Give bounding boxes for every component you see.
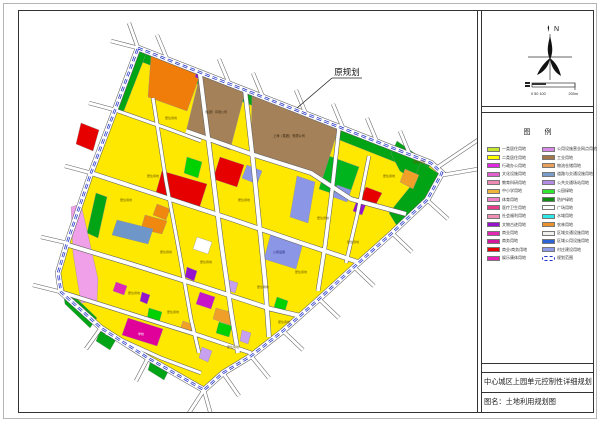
legend-item: 娱乐康体用地 — [482, 254, 537, 262]
road — [438, 140, 477, 167]
legend-item-label: 村庄建设用地 — [557, 248, 581, 252]
scale-bar-filled-segment — [532, 83, 546, 85]
legend-item: 公园绿地 — [537, 187, 592, 195]
legend-item: 防护绿地 — [537, 195, 592, 203]
north-and-scale-panel: N 0 50 100 200m — [505, 16, 590, 102]
legend-color-swatch — [487, 147, 500, 152]
road — [223, 373, 239, 396]
legend-item: 社会福利用地 — [482, 212, 537, 220]
legend-color-swatch — [487, 189, 500, 194]
legend-item-label: 文化设施用地 — [502, 172, 526, 176]
road — [89, 103, 115, 110]
legend-items: 一类居住用地二类居住用地行政办公用地文化设施用地教育科研用地中小学用地体育用地医… — [482, 145, 593, 265]
parcel-label: 居住用地 — [257, 284, 269, 289]
legend-item: 文化设施用地 — [482, 170, 537, 178]
legend-item-label: 广场用地 — [557, 206, 573, 210]
legend-color-swatch — [487, 180, 500, 185]
parcel-label: 居住用地 — [160, 249, 172, 254]
legend-color-swatch — [487, 231, 500, 236]
north-scale-drawing: N 0 50 100 200m — [505, 16, 590, 102]
parcel — [76, 123, 99, 151]
road — [392, 233, 412, 252]
legend-item-label: 公用设施营业网点用地 — [557, 147, 597, 151]
legend-color-swatch — [487, 247, 500, 252]
figure-name: 图名：土地利用规划图 — [482, 392, 593, 412]
legend-item: 规划范围 — [537, 254, 592, 262]
legend-item-label: 区域交通设施用地 — [557, 231, 589, 235]
legend-item-label: 防护绿地 — [557, 198, 573, 202]
road — [427, 200, 448, 219]
road — [251, 356, 269, 378]
legend-item-label: 中小学用地 — [502, 189, 522, 193]
legend-item-label: 文物古迹用地 — [502, 223, 526, 227]
legend-boundary-swatch — [542, 256, 555, 261]
compass-petal-southwest — [537, 58, 550, 75]
parcel-label: 居住用地 — [120, 197, 132, 202]
road — [65, 166, 91, 173]
parcel-label: 居住用地 — [295, 269, 307, 274]
road — [319, 299, 339, 318]
legend-item-label: 道路与交通设施用地 — [557, 172, 593, 176]
legend-item: 公用设施营业网点用地 — [537, 145, 592, 153]
parcel-label: 居住用地 — [278, 319, 290, 324]
legend-item-label: 物流仓储用地 — [557, 164, 581, 168]
legend-item-label: 商业/商务用地 — [502, 248, 527, 252]
legend-item: 物流仓储用地 — [537, 162, 592, 170]
legend-box-bottom-rule — [481, 363, 594, 364]
parcel-label: 居住用地 — [238, 197, 250, 202]
panel-divider-outer — [477, 10, 478, 413]
legend-item: 二类居住用地 — [482, 153, 537, 161]
legend-item: 商业/商务用地 — [482, 246, 537, 254]
legend-item: 体育用地 — [482, 195, 537, 203]
legend-item-label: 规划范围 — [557, 256, 573, 260]
legend-color-swatch — [542, 214, 555, 219]
legend-color-swatch — [487, 155, 500, 160]
legend-item-label: 公园绿地 — [557, 189, 573, 193]
legend-color-swatch — [542, 247, 555, 252]
legend-color-swatch — [542, 155, 555, 160]
legend-color-swatch — [487, 222, 500, 227]
legend-color-swatch — [542, 147, 555, 152]
legend-item-label: 体育用地 — [502, 198, 518, 202]
legend-item: 教育科研用地 — [482, 179, 537, 187]
annotation-original-plan: 原规划 — [334, 67, 360, 77]
parcel-label: 公用设施 — [273, 249, 285, 254]
legend-item: 公共交通场站用地 — [537, 179, 592, 187]
compass-petal-north — [548, 36, 553, 60]
scale-bar-hatch-bottom — [525, 85, 530, 87]
plan-sheet: 上海（集团）有限公司（集团）有限公司居住用地居住用地居住用地居住用地居住用地居住… — [0, 0, 600, 422]
road — [33, 285, 61, 292]
land-use-map: 上海（集团）有限公司（集团）有限公司居住用地居住用地居住用地居住用地居住用地居住… — [19, 11, 477, 412]
legend-item-label: 教育科研用地 — [502, 181, 526, 185]
parcel-label: 上海（集团）有限公司 — [273, 133, 305, 138]
parcel-label: 学校 — [138, 331, 144, 336]
legend-item-label: 工业用地 — [557, 156, 573, 160]
legend-item: 商务用地 — [482, 237, 537, 245]
parcel-label: 居住用地 — [167, 309, 179, 314]
legend-item-label: 娱乐康体用地 — [502, 256, 526, 260]
parcel-label: 居住用地 — [413, 159, 425, 164]
legend-color-swatch — [487, 205, 500, 210]
legend-item: 行政办公用地 — [482, 162, 537, 170]
legend-color-swatch — [542, 222, 555, 227]
road — [189, 390, 204, 412]
parcel-label: 居住用地 — [200, 259, 212, 264]
north-label: N — [554, 26, 559, 33]
legend-item-label: 商业用地 — [502, 231, 518, 235]
legend-color-swatch — [542, 205, 555, 210]
parcel-label: 居住用地 — [128, 290, 140, 295]
legend-item: 广场用地 — [537, 204, 592, 212]
parcel-label: 居住用地 — [165, 115, 177, 120]
map-area: 上海（集团）有限公司（集团）有限公司居住用地居住用地居住用地居住用地居住用地居住… — [19, 11, 477, 412]
legend-item: 医疗卫生用地 — [482, 204, 537, 212]
legend-item: 道路与交通设施用地 — [537, 170, 592, 178]
legend: 图 例 一类居住用地二类居住用地行政办公用地文化设施用地教育科研用地中小学用地体… — [482, 113, 593, 362]
legend-item-label: 医疗卫生用地 — [502, 206, 526, 210]
legend-item-label: 行政办公用地 — [502, 164, 526, 168]
legend-item: 水域用地 — [537, 212, 592, 220]
annotation-leader-line — [297, 78, 332, 108]
legend-item: 一类居住用地 — [482, 145, 537, 153]
parcel-label: 居住用地 — [383, 173, 395, 178]
legend-color-swatch — [487, 197, 500, 202]
scale-tick-labels: 0 50 100 — [531, 92, 546, 96]
scale-bar-hatch-top — [525, 82, 530, 84]
legend-item-label: 社会福利用地 — [502, 214, 526, 218]
legend-color-swatch — [542, 180, 555, 185]
parcel-label: 居住用地 — [347, 239, 359, 244]
legend-item: 区域交通设施用地 — [537, 229, 592, 237]
north-box-bottom-rule — [481, 106, 594, 107]
parcel-label: 居住用地 — [147, 173, 159, 178]
scale-end-label: 200m — [569, 92, 579, 96]
legend-item-label: 农林用地 — [557, 223, 573, 227]
legend-item-label: 商务用地 — [502, 239, 518, 243]
legend-item-label: 水域用地 — [557, 214, 573, 218]
legend-item: 文物古迹用地 — [482, 221, 537, 229]
legend-item-label: 二类居住用地 — [502, 156, 526, 160]
parcel-label: 居住用地 — [227, 344, 239, 349]
legend-color-swatch — [542, 231, 555, 236]
parcel-label: （集团）有限公司 — [203, 109, 227, 114]
road — [283, 331, 303, 350]
legend-item: 中小学用地 — [482, 187, 537, 195]
legend-color-swatch — [487, 256, 500, 261]
plan-title: 中心城区上园单元控制性详细规划 — [482, 372, 593, 392]
road — [136, 358, 148, 381]
north-arrow-icon — [548, 25, 549, 32]
compass-petal-southeast — [550, 58, 561, 76]
legend-item: 工业用地 — [537, 153, 592, 161]
legend-item-label: 区域公用设施用地 — [557, 239, 589, 243]
legend-color-swatch — [542, 197, 555, 202]
legend-color-swatch — [487, 172, 500, 177]
legend-item-label: 一类居住用地 — [502, 147, 526, 151]
legend-color-swatch — [487, 239, 500, 244]
parcel-label: 居住用地 — [317, 215, 329, 220]
legend-item: 村庄建设用地 — [537, 246, 592, 254]
legend-title: 图 例 — [482, 113, 593, 145]
legend-item: 区域公用设施用地 — [537, 237, 592, 245]
legend-item-label: 公共交通场站用地 — [557, 181, 589, 185]
legend-color-swatch — [542, 189, 555, 194]
legend-color-swatch — [487, 163, 500, 168]
legend-item: 商业用地 — [482, 229, 537, 237]
road — [354, 267, 374, 286]
legend-color-swatch — [542, 163, 555, 168]
legend-color-swatch — [487, 214, 500, 219]
legend-item: 农林用地 — [537, 221, 592, 229]
legend-color-swatch — [542, 239, 555, 244]
legend-color-swatch — [542, 172, 555, 177]
